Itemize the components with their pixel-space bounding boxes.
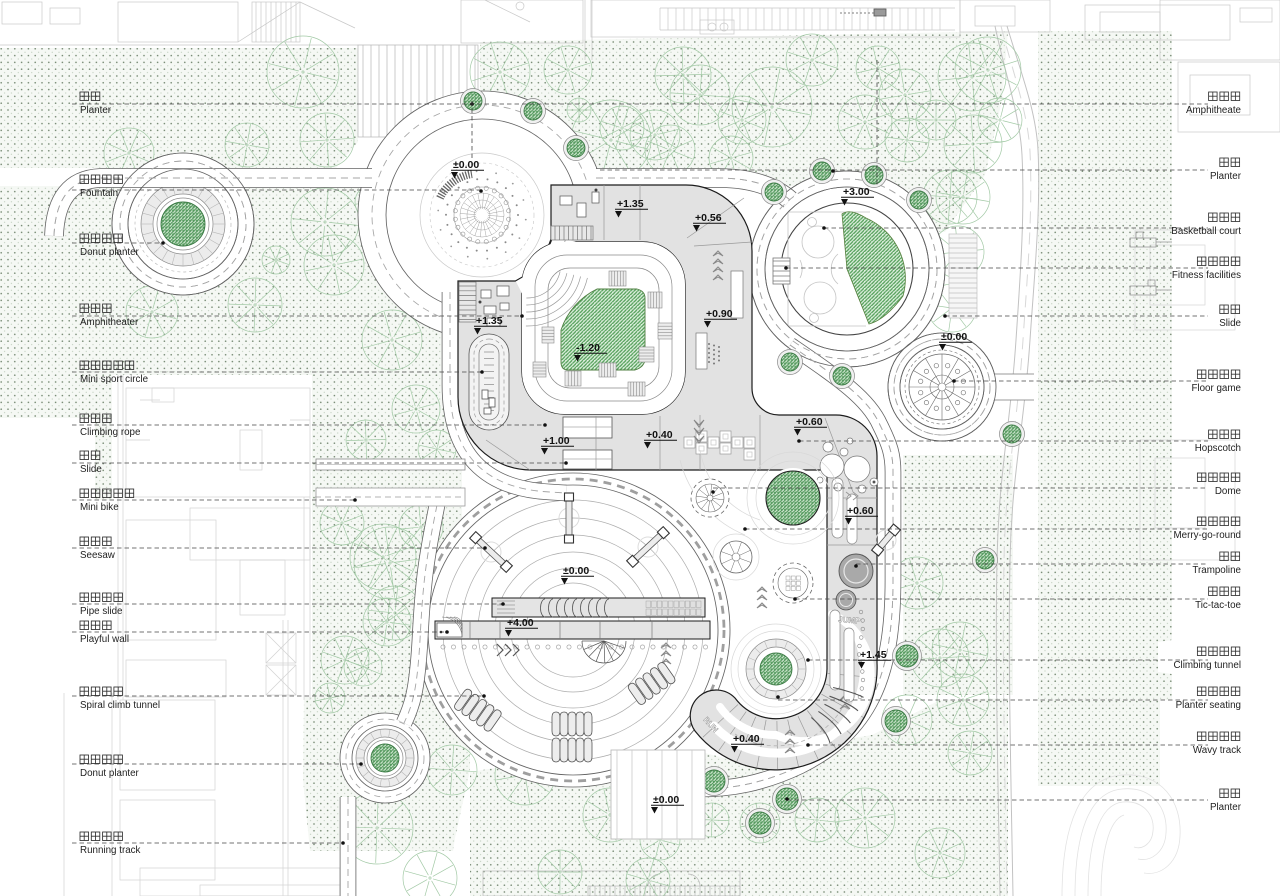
svg-text:Playful wall: Playful wall [80, 634, 129, 645]
svg-text:Spiral climb tunnel: Spiral climb tunnel [80, 700, 160, 711]
svg-text:Climbing tunnel: Climbing tunnel [1173, 660, 1241, 671]
svg-text:Planter: Planter [1210, 171, 1242, 182]
svg-text:+1.35: +1.35 [476, 315, 503, 327]
svg-text:Donut planter: Donut planter [80, 768, 140, 779]
svg-text:+0.60: +0.60 [847, 505, 874, 517]
svg-text:Planter: Planter [80, 105, 112, 116]
svg-text:Wavy track: Wavy track [1193, 745, 1241, 756]
svg-text:+3.00: +3.00 [843, 186, 870, 198]
svg-text:Fitness facilities: Fitness facilities [1172, 270, 1241, 281]
svg-text:Amphitheater: Amphitheater [80, 317, 139, 328]
svg-text:Hopscotch: Hopscotch [1195, 443, 1241, 454]
svg-text:±0.00: ±0.00 [563, 565, 589, 577]
svg-text:±0.00: ±0.00 [941, 331, 967, 343]
svg-text:Amphitheate: Amphitheate [1186, 105, 1242, 116]
svg-text:Dome: Dome [1215, 486, 1242, 497]
svg-text:+0.90: +0.90 [706, 308, 733, 320]
svg-text:JUMP: JUMP [838, 615, 861, 626]
svg-text:Slide: Slide [1219, 318, 1241, 329]
svg-text:Slide: Slide [80, 464, 102, 475]
svg-text:Donut planter: Donut planter [80, 247, 140, 258]
svg-text:Planter: Planter [1210, 802, 1242, 813]
svg-text:Pipe slide: Pipe slide [80, 606, 123, 617]
svg-text:Mini sport circle: Mini sport circle [80, 374, 149, 385]
svg-text:+1.00: +1.00 [543, 435, 570, 447]
svg-text:Basketball court: Basketball court [1171, 226, 1241, 237]
svg-text:Running track: Running track [80, 845, 141, 856]
svg-text:+1.45: +1.45 [860, 649, 887, 661]
svg-text:+0.40: +0.40 [646, 429, 673, 441]
svg-text:+0.60: +0.60 [796, 416, 823, 428]
svg-text:Seesaw: Seesaw [80, 550, 116, 561]
svg-text:±0.00: ±0.00 [453, 159, 479, 171]
svg-text:Merry-go-round: Merry-go-round [1173, 530, 1241, 541]
svg-text:+0.56: +0.56 [695, 212, 722, 224]
svg-text:Climbing rope: Climbing rope [80, 427, 141, 438]
svg-text:Mini bike: Mini bike [80, 502, 119, 513]
svg-text:Planter seating: Planter seating [1176, 700, 1241, 711]
svg-text:+0.40: +0.40 [733, 733, 760, 745]
svg-text:+1.35: +1.35 [617, 198, 644, 210]
svg-text:-1.20: -1.20 [576, 342, 600, 354]
svg-text:+4.00: +4.00 [507, 617, 534, 629]
svg-text:±0.00: ±0.00 [653, 794, 679, 806]
svg-text:Floor game: Floor game [1191, 383, 1241, 394]
svg-text:Fountain: Fountain [80, 188, 118, 199]
svg-text:Trampoline: Trampoline [1192, 565, 1241, 576]
svg-text:Tic-tac-toe: Tic-tac-toe [1195, 600, 1241, 611]
